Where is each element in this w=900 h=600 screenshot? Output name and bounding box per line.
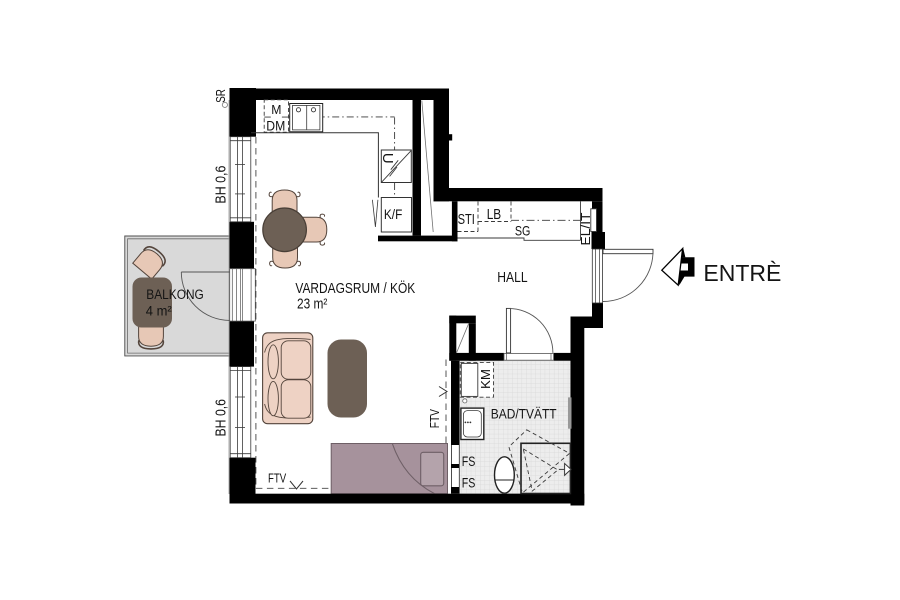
- svg-text:STI: STI: [458, 212, 475, 228]
- svg-text:23 m²: 23 m²: [297, 297, 327, 313]
- svg-text:FTV: FTV: [427, 409, 442, 429]
- svg-text:DM: DM: [266, 118, 285, 134]
- svg-text:BAD/TVÄTT: BAD/TVÄTT: [491, 405, 557, 421]
- svg-text:K/F: K/F: [384, 207, 402, 222]
- svg-text:M: M: [271, 102, 281, 117]
- svg-text:4 m²: 4 m²: [146, 304, 172, 319]
- svg-text:VARDAGSRUM / KÖK: VARDAGSRUM / KÖK: [295, 279, 415, 297]
- svg-text:FTV: FTV: [268, 470, 286, 485]
- svg-text:BH 0,6: BH 0,6: [213, 166, 229, 204]
- svg-text:KM: KM: [479, 369, 493, 389]
- svg-text:FS: FS: [462, 475, 476, 490]
- svg-text:FS: FS: [462, 454, 476, 469]
- svg-text:ENTRÈ: ENTRÈ: [703, 260, 781, 286]
- svg-text:SG: SG: [515, 223, 531, 239]
- svg-text:EL/IT: EL/IT: [578, 212, 593, 245]
- svg-text:BH 0,6: BH 0,6: [213, 399, 229, 437]
- svg-text:U: U: [379, 153, 395, 164]
- svg-text:LB: LB: [487, 207, 502, 223]
- svg-text:BALKONG: BALKONG: [146, 287, 204, 302]
- svg-text:SR: SR: [213, 89, 228, 103]
- svg-text:HALL: HALL: [497, 270, 527, 286]
